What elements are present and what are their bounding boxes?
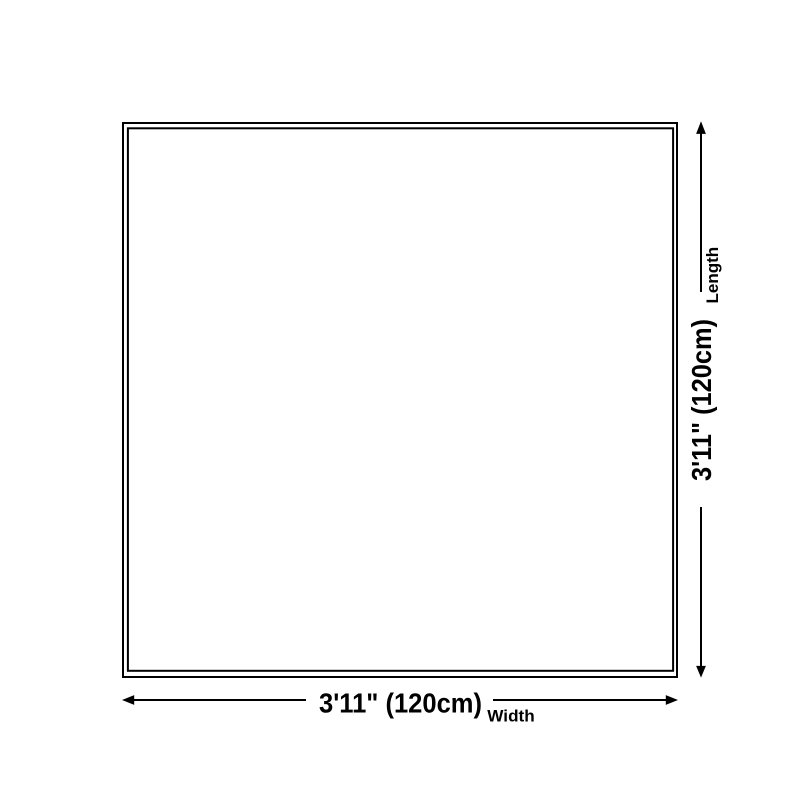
svg-text:Width: Width	[487, 707, 534, 725]
svg-text:3'11" (120cm): 3'11" (120cm)	[686, 319, 717, 481]
svg-text:Length: Length	[704, 247, 722, 304]
svg-text:3'11" (120cm): 3'11" (120cm)	[319, 687, 482, 718]
